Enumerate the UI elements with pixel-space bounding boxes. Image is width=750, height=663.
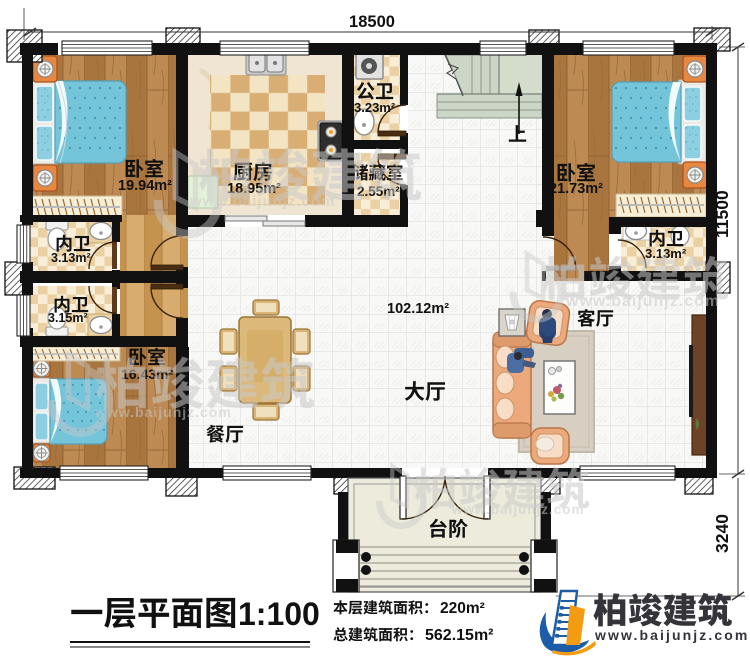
svg-text:19.94m²: 19.94m² [118,178,172,194]
svg-text:102.12m²: 102.12m² [387,301,449,317]
svg-text:220m²: 220m² [440,600,485,617]
svg-text:www.baijunjz.com: www.baijunjz.com [189,193,335,210]
svg-text:3240: 3240 [712,514,732,553]
svg-text:3.13m²: 3.13m² [51,251,91,265]
svg-text:www.baijunjz.com: www.baijunjz.com [594,627,749,643]
svg-text:www.baijunjz.com: www.baijunjz.com [94,404,232,420]
svg-text:3.23m²: 3.23m² [354,100,396,115]
svg-text:21.73m²: 21.73m² [549,181,603,197]
svg-text:1:100: 1:100 [238,596,320,632]
svg-text:3.15m²: 3.15m² [48,311,88,325]
svg-text:11500: 11500 [712,190,732,238]
svg-text:562.15m²: 562.15m² [425,627,494,644]
svg-text:www.baijunjz.com: www.baijunjz.com [565,293,720,310]
svg-text:18500: 18500 [349,13,395,31]
svg-text:www.baijunjz.com: www.baijunjz.com [451,502,585,517]
